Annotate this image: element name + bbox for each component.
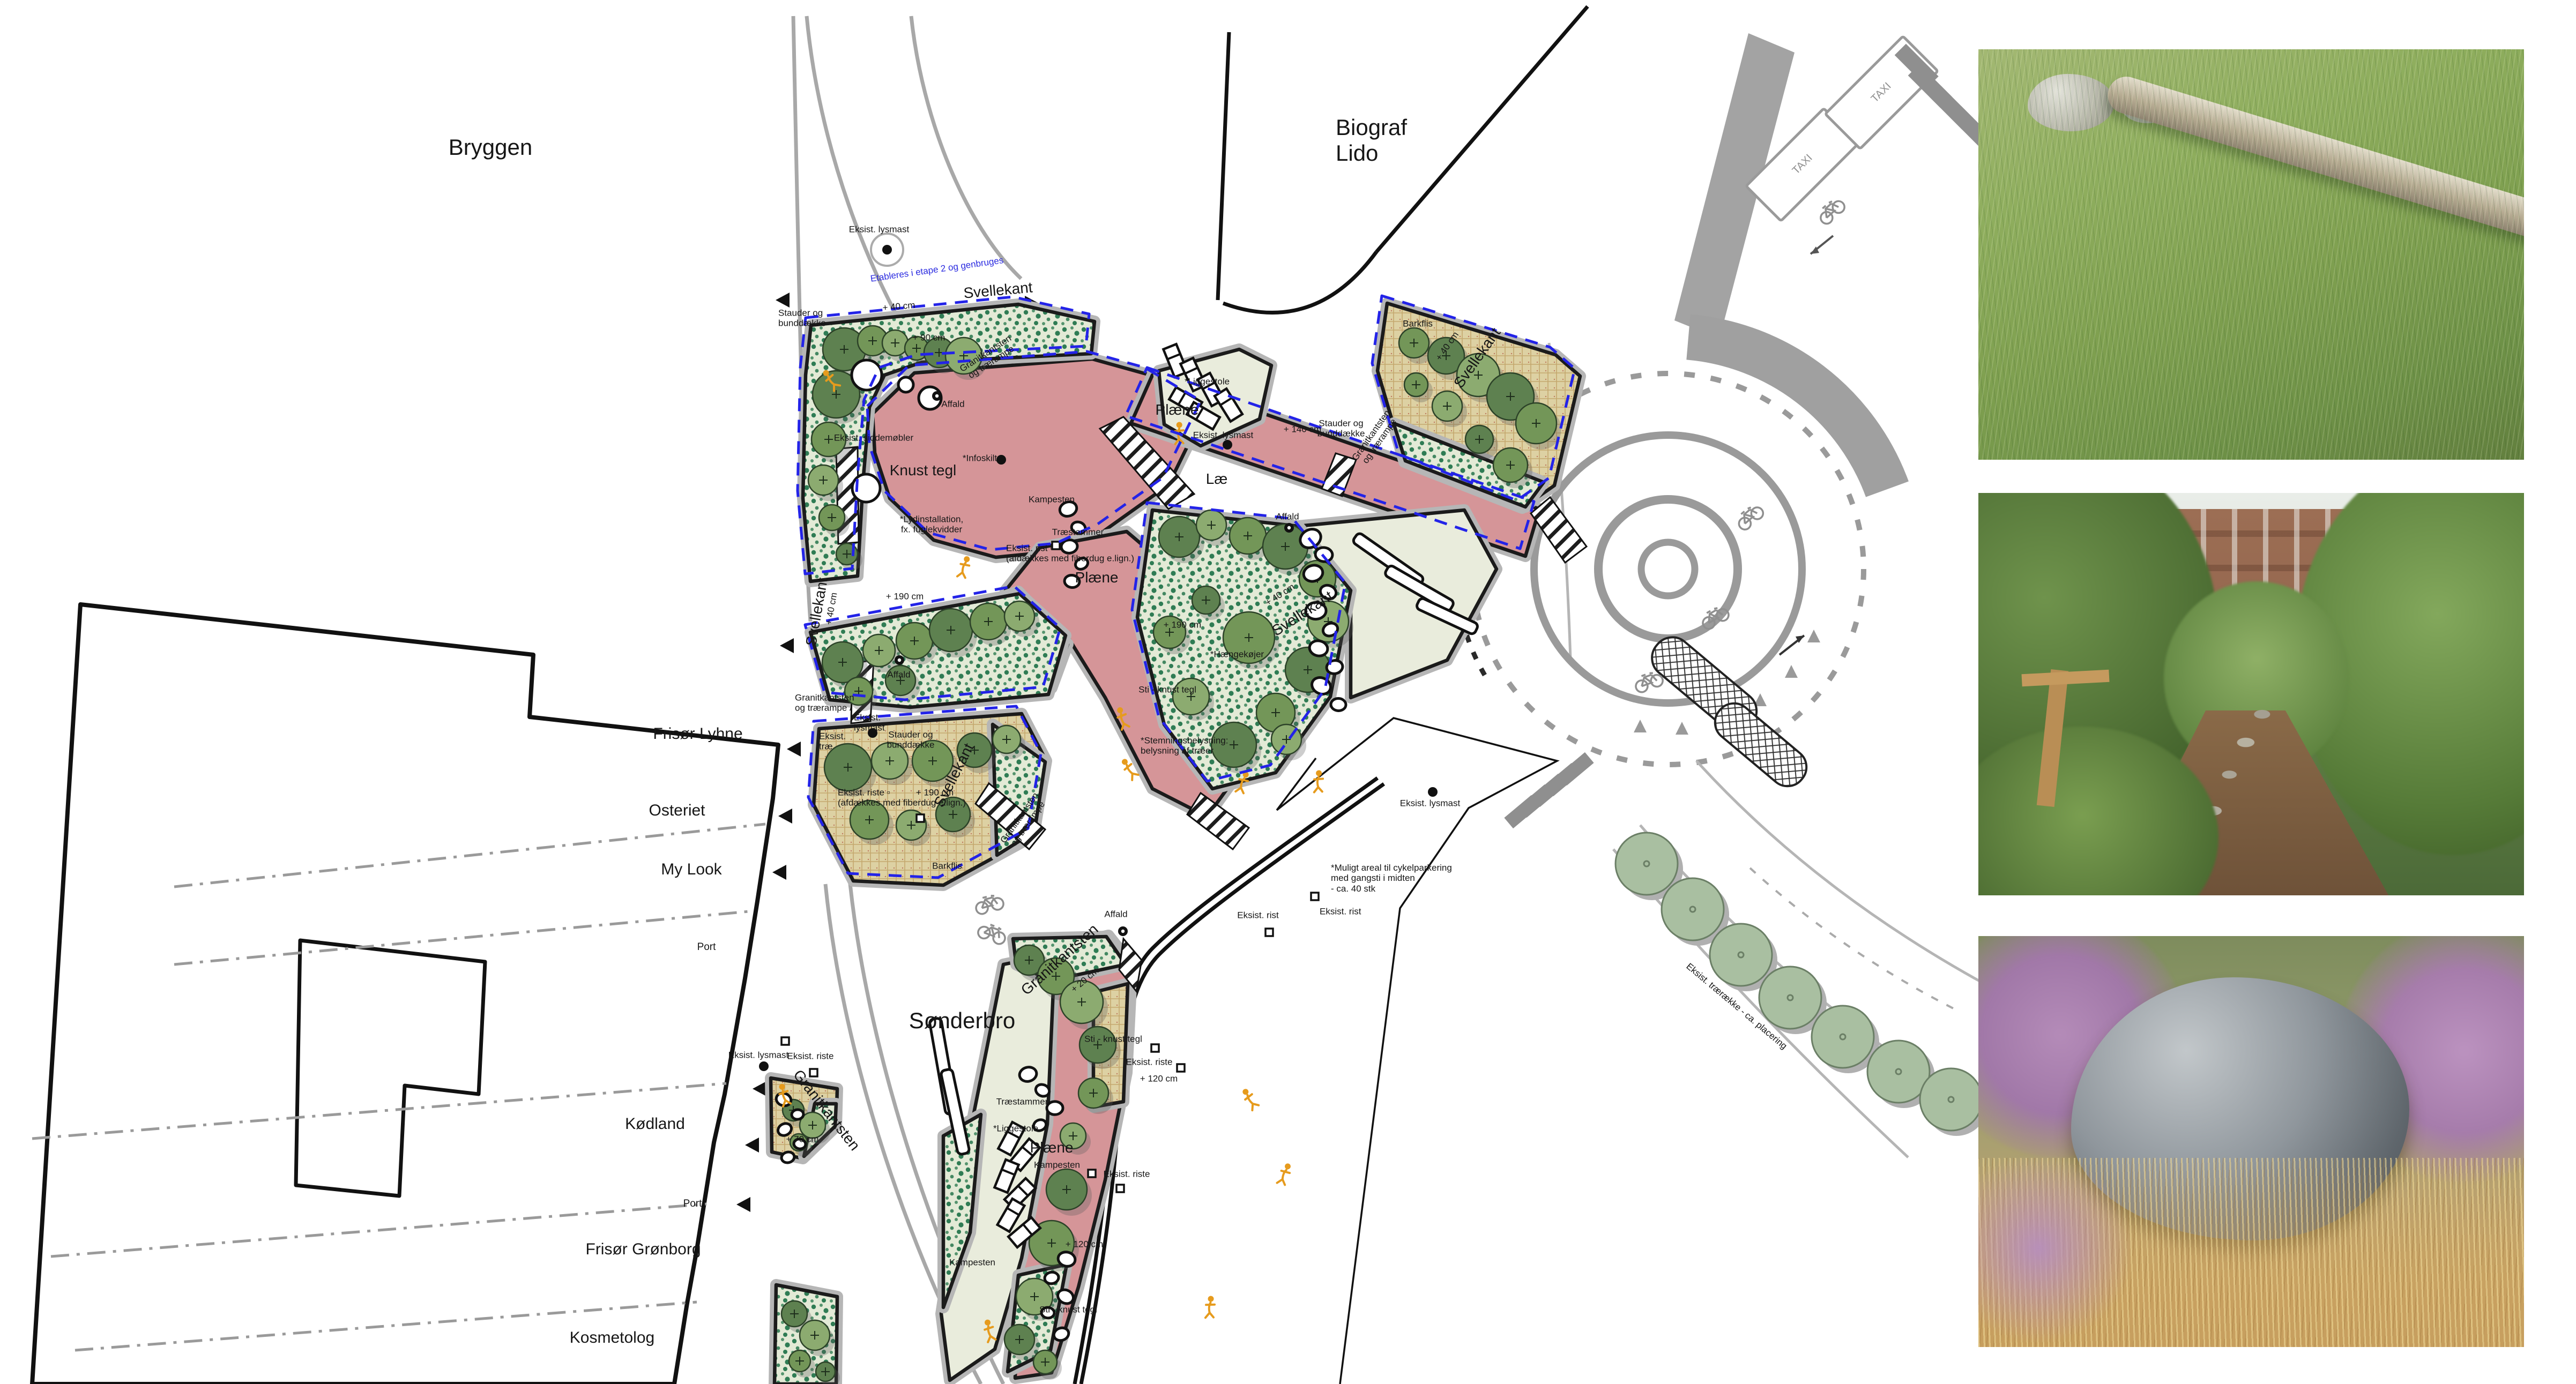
plan-label: Eksist. lysmast (728, 1050, 788, 1060)
plan-label: My Look (661, 861, 721, 879)
plan-label: *Lydinstallation, fx. fuglekvidder (900, 514, 963, 535)
plan-label: Sti - knust tegl (1084, 1034, 1142, 1044)
plan-label: + 40 cm (1434, 330, 1461, 362)
plan-label: Knust tegl (890, 462, 957, 479)
plan-label: + 90 cm (913, 332, 945, 342)
plan-label: Sønderbro (909, 1008, 1015, 1034)
plan-label: Eksist. riste (1104, 1169, 1150, 1179)
plan-label: Eksist. trærække - ca. placering (1684, 961, 1789, 1051)
plan-label: Svellekant (963, 279, 1033, 302)
plan-label: Granitkantsten (1018, 921, 1102, 999)
plan-label: Eksist. rist (1320, 906, 1361, 916)
plan-label: Kampesten (1034, 1159, 1080, 1170)
plan-label: + 190 cm (886, 591, 924, 601)
plan-label: Osteriet (649, 802, 705, 820)
plan-label: Eksist. lysmast (1193, 430, 1253, 440)
plan-label: Kampesten (949, 1257, 995, 1267)
plan-label: Eksist. rist ▫ (afdækkes med fiberdug e.… (1006, 543, 1134, 564)
plan-label: Eksist. træ (819, 731, 846, 752)
plan-label: Kosmetolog (570, 1329, 654, 1347)
plan-label: Plæne (1156, 401, 1199, 418)
plan-label: Frisør Lyhne (653, 725, 742, 743)
plan-label: Sti - knust tegl (1039, 1304, 1097, 1314)
plan-label: Bryggen (449, 134, 532, 160)
plan-label: Stauder og bunddække (778, 308, 826, 329)
plan-label: Affald (1104, 909, 1127, 919)
plan-label: + 40 cm (882, 300, 915, 313)
plan-label: Affald (941, 399, 964, 409)
plan-label: Eksist. lysmast (854, 713, 885, 734)
plan-label: Eksist. lysmast (1400, 798, 1460, 808)
plan-label: Træstammer (996, 1096, 1048, 1106)
plan-label: Læ (1206, 470, 1227, 488)
plan-label: Eksist. siddemøbler (834, 432, 913, 443)
plan-label: + 120 cm (1066, 1239, 1103, 1249)
plan-label: Træstammer (1052, 527, 1104, 537)
plan-label: Stauder og bunddække (1317, 418, 1365, 439)
plan-label: TAXI (1869, 80, 1894, 106)
plan-label: Kødland (625, 1115, 685, 1133)
plan-label: Eksist. riste (1126, 1057, 1173, 1067)
plan-label: Granitkantsten og trærampe (998, 791, 1049, 851)
plan-label-layer: BryggenBiograf LidoSønderbroFrisør Lyhne… (0, 0, 2576, 1384)
plan-label: + 20 cm (1069, 966, 1100, 994)
plan-label: Affald (1276, 511, 1299, 521)
plan-label: + 40 cm (1263, 581, 1297, 608)
plan-label: *Infoskilt (963, 453, 997, 463)
plan-label: Stauder og bunddække (887, 730, 935, 751)
plan-label: Barkflis (932, 861, 962, 871)
plan-label: Kampesten (1029, 494, 1075, 504)
plan-label: + 140 cm (1284, 424, 1321, 434)
plan-label: Plæne (1075, 569, 1119, 586)
plan-label: Affald (887, 669, 910, 679)
plan-label: *Stemningsbelysning: belysning af træer (1141, 736, 1228, 757)
plan-label: Biograf Lido (1336, 115, 1407, 166)
plan-label: Eksist. riste (787, 1051, 834, 1061)
plan-label: + 190 cm (916, 787, 954, 797)
plan-label: + 190 cm (1164, 619, 1201, 630)
plan-label: Granitkantsten og trærampe (958, 333, 1019, 383)
plan-label: Port (697, 941, 716, 953)
site-plan-page: BryggenBiograf LidoSønderbroFrisør Lyhne… (0, 0, 2576, 1384)
plan-label: Barkflis (1403, 318, 1433, 328)
plan-label: Granitkantsten og trærampe / (795, 693, 854, 714)
plan-label: Plæne (1030, 1139, 1074, 1156)
plan-label: Eksist. lysmast (849, 224, 909, 234)
plan-label: *Muligt areal til cykelparkering med gan… (1331, 863, 1452, 894)
plan-label: Sti - knust tegl (1138, 684, 1196, 694)
plan-label: TAXI (1790, 152, 1815, 177)
plan-label: + 70 cm (786, 1134, 819, 1144)
plan-label: Etableres i etape 2 og genbruges (870, 255, 1004, 284)
plan-label: Port (683, 1198, 702, 1210)
plan-label: + 120 cm (1140, 1073, 1178, 1083)
plan-label: *Liggestole (993, 1123, 1038, 1133)
plan-label: Frisør Grønborg (585, 1240, 701, 1259)
plan-label: *Hængekøjer (1210, 649, 1264, 659)
plan-label: Eksist. rist (1237, 910, 1278, 920)
plan-label: *Liggestole (1185, 376, 1230, 386)
